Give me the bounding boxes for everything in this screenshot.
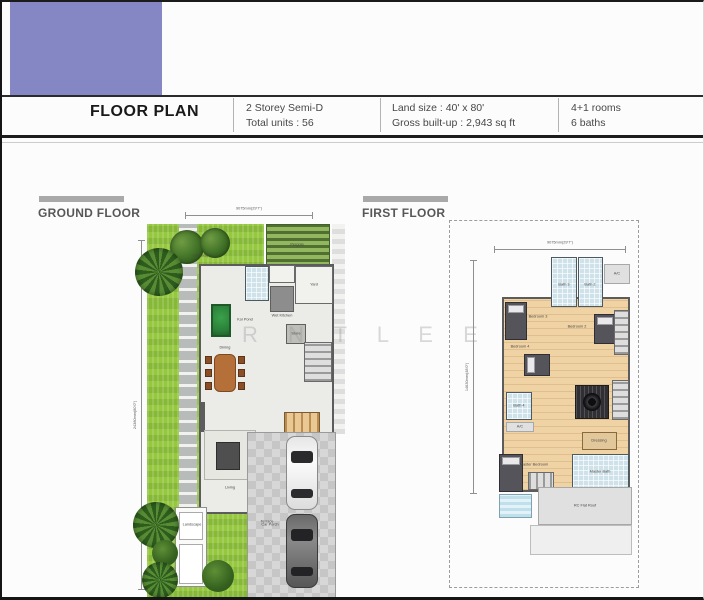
yard-label: Yard [310, 283, 318, 287]
master-bath-label: Master Bath [590, 470, 611, 474]
palm-tree [135, 248, 183, 296]
master-bedroom-label: Master Bedroom [520, 463, 548, 467]
car-rear-window [291, 489, 313, 498]
ground-bath [245, 266, 269, 301]
wet-kitchen-label: Wet Kitchen [272, 314, 293, 318]
koi-pond-label: Koi Pond [237, 318, 253, 322]
info-line: 2 Storey Semi-D [246, 101, 323, 116]
first-dimension-label-top: 9075mm(29'7") [547, 241, 573, 245]
info-line: 4+1 rooms [571, 101, 621, 116]
ground-dimension-line-top [185, 215, 313, 216]
rc-flat-roof-lower [530, 525, 632, 555]
first-dimension-line-left [473, 260, 474, 494]
ground-dimension-label-top: 9075mm(29'7") [236, 207, 262, 211]
car-porch-label: Car Porch [261, 523, 278, 527]
dining-chair [238, 356, 245, 364]
wet-kitchen-cabinets [270, 286, 294, 312]
bedroom2-label: Bedroom 2 [568, 325, 587, 329]
dining-table [214, 354, 236, 392]
header-divider [380, 98, 381, 132]
bath3-label: Bath 3 [558, 283, 569, 287]
dining-chair [205, 356, 212, 364]
palm-tree [142, 562, 178, 598]
rc-flat-roof-label: RC Flat Roof [574, 504, 596, 508]
page-title: FLOOR PLAN [90, 103, 199, 121]
header-bottom-rule [2, 135, 704, 138]
info-line: Total units : 56 [246, 116, 323, 131]
white-car [286, 436, 318, 510]
first-dimension-line-top [494, 249, 626, 250]
tv-console [199, 402, 205, 432]
master-bed [499, 454, 523, 492]
bedroom4-label: Bedroom 4 [511, 345, 530, 349]
balcony [499, 494, 532, 518]
brochure-page: FLOOR PLAN 2 Storey Semi-D Total units :… [0, 0, 704, 600]
car-rear-window [291, 567, 313, 576]
bed-pillow [508, 305, 524, 313]
palm-tree [133, 502, 179, 548]
purple-accent-block [10, 2, 162, 95]
info-line: Land size : 40' x 80' [392, 101, 515, 116]
dining-chair [238, 369, 245, 377]
first-stairs-right-top [614, 310, 629, 355]
ground-stairs-upper [304, 342, 332, 382]
info-column-type: 2 Storey Semi-D Total units : 56 [246, 101, 323, 131]
dining-chair [205, 369, 212, 377]
dining-label: Dining [220, 346, 231, 350]
bath2-label: Bath 2 [584, 283, 595, 287]
bed-pillow [527, 357, 535, 373]
header-divider [233, 98, 234, 132]
dressing-label: Dressing [591, 439, 606, 443]
bedroom3-bed [505, 302, 527, 340]
info-column-size: Land size : 40' x 80' Gross built-up : 2… [392, 101, 515, 131]
first-floor-title: FIRST FLOOR [362, 206, 445, 220]
utility-box [179, 544, 203, 584]
bed-pillow [597, 317, 613, 325]
bed-pillow [502, 457, 520, 465]
stair-void [575, 385, 609, 419]
store-label: Store [291, 332, 300, 336]
header-top-rule [2, 95, 704, 97]
ac-top-label: A/C [614, 272, 620, 276]
ground-wc [269, 265, 295, 283]
garden-bush [202, 560, 234, 592]
ground-floor-section-bar [39, 196, 124, 202]
header-divider [558, 98, 559, 132]
ground-dimension-label-left: 24380mm(80'0") [133, 401, 137, 429]
pergola-label: Pergola [290, 243, 303, 247]
bedroom3-label: Bedroom 3 [529, 315, 548, 319]
car-windshield [291, 529, 313, 541]
info-column-rooms: 4+1 rooms 6 baths [571, 101, 621, 131]
living-label: Living [225, 486, 235, 490]
dining-chair [238, 382, 245, 390]
ground-floor-title: GROUND FLOOR [38, 206, 140, 220]
bedroom2-bed [594, 314, 616, 344]
landscape-bottom-label: Landscape [183, 523, 202, 527]
dark-car [286, 514, 318, 588]
coffee-table [216, 442, 240, 470]
ac-mid-label: A/C [517, 425, 523, 429]
car-windshield [291, 451, 313, 463]
landscape-top-label: Landscape [193, 254, 212, 258]
bedroom4-bed [524, 354, 550, 376]
first-dimension-label-left: 14630mm(48'0") [465, 363, 469, 391]
first-floor-section-bar [363, 196, 448, 202]
ceiling-fan [583, 393, 601, 411]
dining-chair [205, 382, 212, 390]
first-stairs-right-mid [612, 380, 629, 420]
koi-pond [211, 304, 231, 337]
info-line: Gross built-up : 2,943 sq ft [392, 116, 515, 131]
header-thin-rule [2, 142, 704, 143]
info-line: 6 baths [571, 116, 621, 131]
bath4-label: Bath 4 [513, 404, 524, 408]
